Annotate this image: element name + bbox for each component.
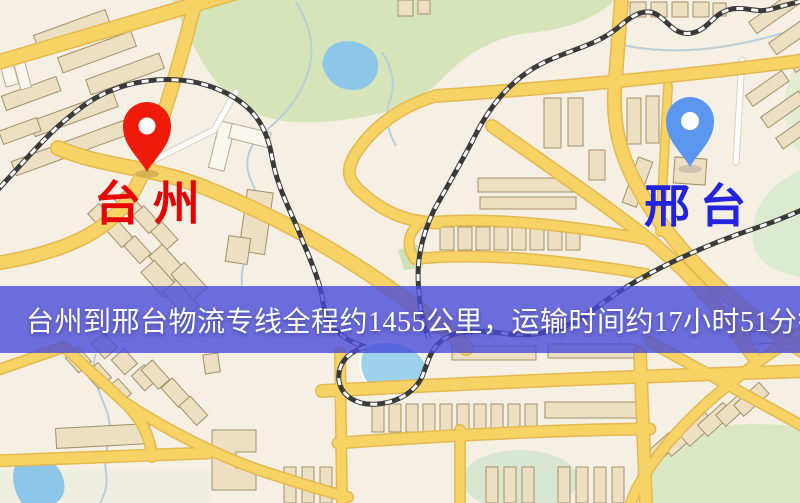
origin-label: 台州 — [94, 179, 212, 231]
route-banner-text: 台州到邢台物流专线全程约1455公里，运输时间约17小时51分钟. — [26, 300, 800, 340]
destination-label: 邢台 — [644, 181, 756, 232]
route-banner: 台州到邢台物流专线全程约1455公里，运输时间约17小时51分钟. — [0, 286, 800, 353]
map-image: 台州 邢台 — [0, 0, 800, 503]
logistics-route-map: 台州 邢台 台州到邢台物流专线全程约1455公里，运输时间约17小时51分钟. — [0, 0, 800, 503]
